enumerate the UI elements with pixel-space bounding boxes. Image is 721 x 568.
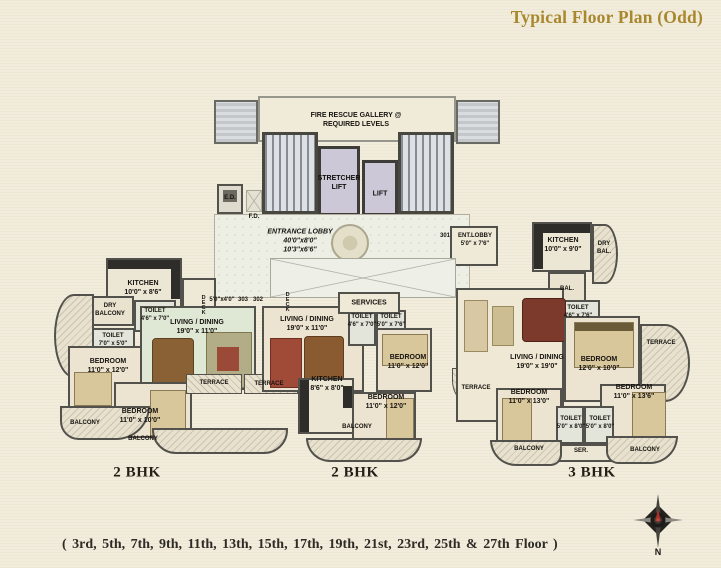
label-right-ser: SER. bbox=[574, 448, 588, 456]
label-flat-303: 303 bbox=[238, 297, 248, 305]
unit-label-right: 3 BHK bbox=[568, 465, 616, 482]
page-title: Typical Floor Plan (Odd) bbox=[511, 7, 703, 28]
label-stretcher-lift: STRETCHER LIFT bbox=[318, 174, 361, 192]
unit-label-left: 2 BHK bbox=[113, 465, 161, 482]
label-left-balcony-a: BALCONY bbox=[70, 420, 100, 428]
label-right-toilet-a: TOILET 5'0" x 8'0" bbox=[557, 416, 586, 432]
label-right-toilet-b: TOILET 5'0" x 8'0" bbox=[586, 416, 615, 432]
label-right-terrace-left: TERRACE bbox=[461, 385, 490, 393]
label-fire-rescue-gallery: FIRE RESCUE GALLERY @ REQUIRED LEVELS bbox=[286, 111, 426, 129]
unit-label-middle: 2 BHK bbox=[331, 465, 379, 482]
label-left-deck: DECK bbox=[199, 295, 206, 315]
lobby-medallion bbox=[331, 224, 369, 262]
label-mid-living: LIVING / DINING 19'0" x 11'0" bbox=[280, 315, 334, 333]
label-right-balcony-a: BALCONY bbox=[514, 446, 544, 454]
label-left-balcony-b: BALCONY bbox=[128, 436, 158, 444]
compass-north-label: N bbox=[655, 547, 662, 556]
label-deck-dim: 5'0"x4'0" bbox=[209, 297, 234, 305]
compass-rose-icon: N bbox=[630, 492, 686, 556]
fire-duct bbox=[246, 190, 262, 212]
label-right-ent-lobby: ENT.LOBBY 5'0" x 7'6" bbox=[458, 233, 492, 249]
roof-wing-right bbox=[456, 100, 500, 144]
roof-wing-left bbox=[214, 100, 258, 144]
label-mid-terrace: TERRACE bbox=[254, 381, 283, 389]
label-mid-bedroom-b: BEDROOM 11'0" x 12'0" bbox=[366, 393, 407, 411]
dining-table bbox=[522, 298, 566, 342]
label-flat-302: 302 bbox=[253, 297, 263, 305]
label-mid-kitchen: KITCHEN 8'6" x 8'0" bbox=[310, 375, 343, 393]
label-right-bedroom-b: BEDROOM 11'0" x 13'0" bbox=[509, 388, 550, 406]
label-right-kitchen: KITCHEN 10'0" x 9'0" bbox=[544, 236, 581, 254]
left-balcony-b bbox=[152, 428, 288, 454]
label-right-bedroom-a: BEDROOM 12'0" x 10'0" bbox=[578, 355, 619, 373]
label-lift: LIFT bbox=[373, 189, 388, 198]
mid-balcony bbox=[306, 438, 422, 462]
armchair bbox=[492, 306, 514, 346]
label-mid-toilet-b: TOILET 5'0" x 7'6" bbox=[377, 314, 406, 330]
label-right-bedroom-c: BEDROOM 11'0" x 13'6" bbox=[614, 383, 655, 401]
label-right-toilet-top: TOILET 4'6" x 7'6" bbox=[564, 305, 593, 321]
label-mid-balcony: BALCONY bbox=[342, 424, 372, 432]
label-left-toilet-b: TOILET 7'0" x 5'0" bbox=[99, 333, 128, 349]
sofa bbox=[464, 300, 488, 352]
label-left-bedroom-a: BEDROOM 11'0" x 12'0" bbox=[88, 357, 129, 375]
bed bbox=[74, 372, 112, 406]
label-left-terrace: TERRACE bbox=[199, 380, 228, 388]
label-entrance-lobby: ENTRANCE LOBBY 40'0"x8'0" 10'3"x6'6" bbox=[267, 227, 332, 254]
label-fd: F.D. bbox=[249, 214, 260, 222]
floors-note: ( 3rd, 5th, 7th, 9th, 11th, 13th, 15th, … bbox=[62, 537, 558, 553]
label-services: SERVICES bbox=[351, 298, 386, 307]
label-mid-deck: DECK bbox=[283, 292, 290, 312]
label-right-living: LIVING / DINING 19'0" x 19'0" bbox=[510, 353, 564, 371]
label-left-toilet-a: TOILET 4'6" x 7'0" bbox=[141, 308, 170, 324]
label-left-bedroom-b: BEDROOM 11'0" x 10'0" bbox=[120, 407, 161, 425]
label-mid-bedroom-a: BEDROOM 11'0" x 12'0" bbox=[388, 353, 429, 371]
label-right-balcony-b: BALCONY bbox=[630, 447, 660, 455]
label-ed: E.D. bbox=[224, 195, 236, 203]
label-left-dry-balcony: DRY BALCONY bbox=[95, 303, 125, 319]
label-left-kitchen: KITCHEN 10'0" x 8'6" bbox=[124, 279, 161, 297]
label-right-terrace-right: TERRACE bbox=[646, 340, 675, 348]
label-flat-301: 301 bbox=[440, 233, 450, 241]
label-mid-toilet-a: TOILET 4'6" x 7'0" bbox=[348, 314, 377, 330]
label-right-dry-bal: DRY BAL. bbox=[597, 241, 611, 257]
staircase-right bbox=[398, 132, 454, 214]
staircase-left bbox=[262, 132, 318, 214]
lift bbox=[362, 160, 398, 216]
label-left-living: LIVING / DINING 19'0" x 11'0" bbox=[170, 318, 224, 336]
coffee-table bbox=[217, 347, 239, 371]
label-right-bal: BAL. bbox=[560, 286, 574, 294]
